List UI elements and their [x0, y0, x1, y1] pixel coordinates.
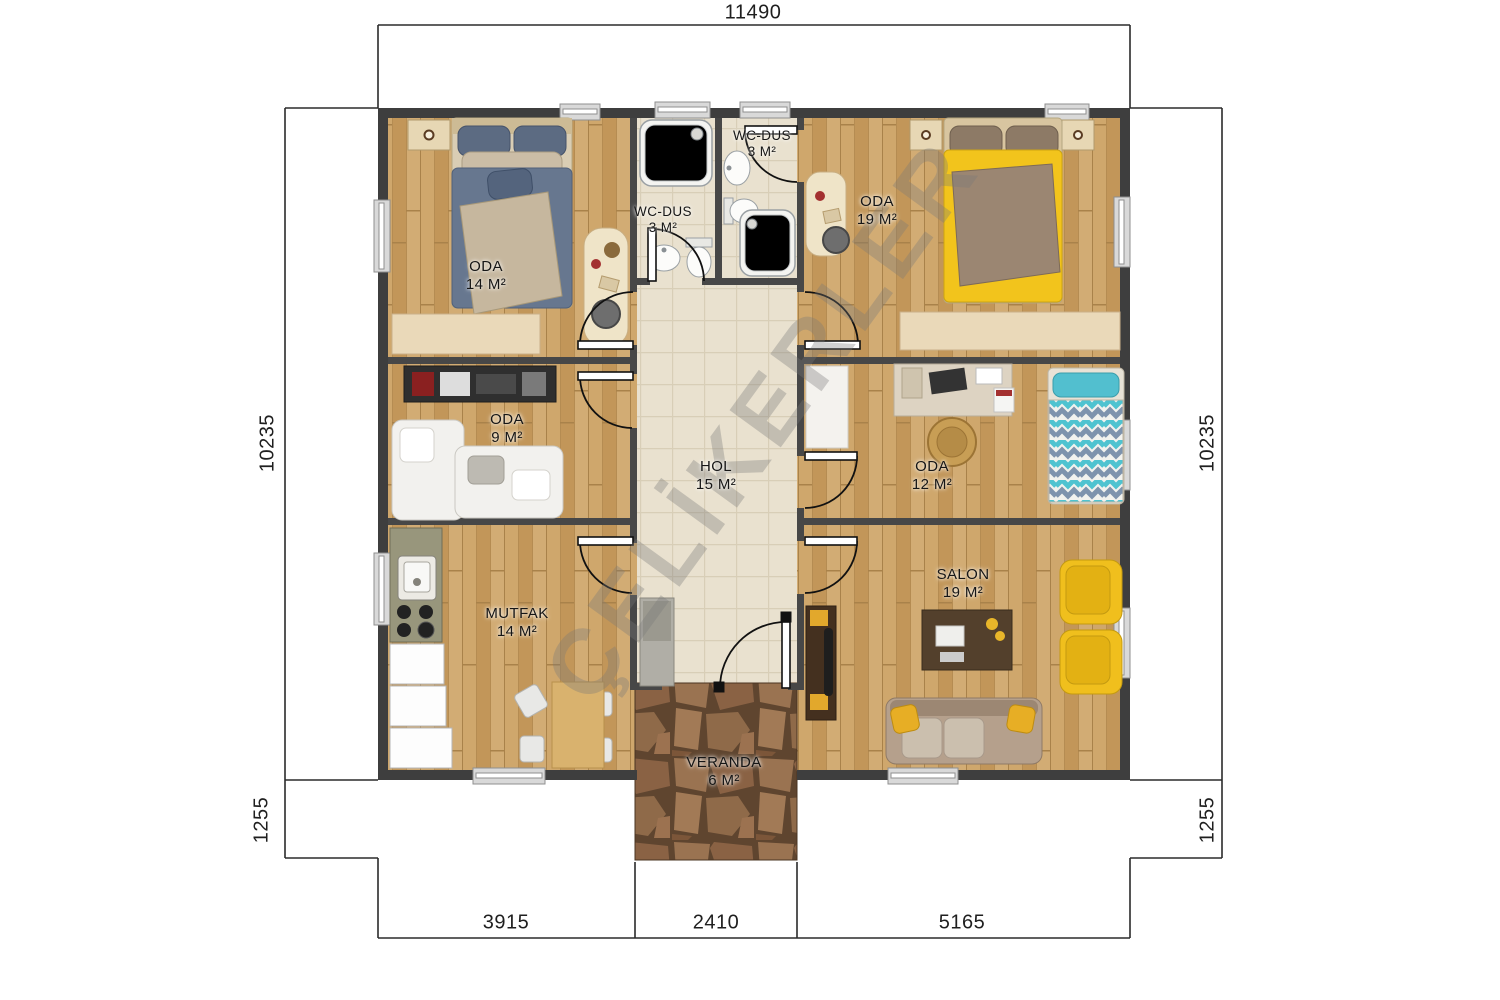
sideboard [392, 314, 540, 354]
kitchen-counter [390, 528, 442, 642]
window-right-oda19 [1114, 197, 1130, 267]
hall-shoe-cabinet [640, 598, 674, 686]
room-area: 6 M² [686, 772, 761, 790]
room-area: 3 M² [733, 144, 791, 160]
room-label-mutfak: MUTFAK 14 M² [485, 605, 548, 641]
room-area: 14 M² [485, 623, 548, 641]
room-name: SALON [937, 566, 990, 584]
shower [640, 120, 712, 186]
room-label-oda19: ODA 19 M² [857, 193, 897, 229]
room-area: 19 M² [937, 584, 990, 602]
dim-bottom-left: 3915 [483, 912, 530, 935]
double-bed-yellow [944, 118, 1062, 303]
room-label-veranda: VERANDA 6 M² [686, 754, 761, 790]
room-area: 12 M² [912, 476, 952, 494]
room-area: 15 M² [696, 476, 736, 494]
coffee-table [922, 610, 1012, 670]
room-area: 3 M² [634, 220, 692, 236]
dresser-desk [584, 228, 628, 346]
dim-right-lower: 1255 [1197, 797, 1220, 844]
room-label-salon: SALON 19 M² [937, 566, 990, 602]
room-name: WC-DUS [733, 128, 791, 144]
room-area: 9 M² [490, 429, 524, 447]
wardrobe-shelf [404, 366, 556, 402]
dim-right-main: 10235 [1197, 414, 1220, 472]
tv-unit [806, 606, 836, 720]
room-name: ODA [490, 411, 524, 429]
room-name: ODA [912, 458, 952, 476]
dim-left-main: 10235 [257, 414, 280, 472]
nightstand [1062, 120, 1094, 150]
window-left-oda14 [374, 200, 390, 272]
floor-plan-page: ÇELİKERLER 11490 10235 1255 10235 1255 3… [0, 0, 1500, 1000]
room-label-hol: HOL 15 M² [696, 458, 736, 494]
room-label-wc2: WC-DUS 3 M² [733, 128, 791, 160]
nightstand [910, 120, 942, 150]
sofa-taupe [886, 698, 1042, 764]
sideboard [900, 312, 1120, 350]
room-name: MUTFAK [485, 605, 548, 623]
dim-bottom-right: 5165 [939, 912, 986, 935]
armchair-yellow [1060, 630, 1122, 694]
dim-left-lower: 1255 [251, 797, 274, 844]
room-area: 14 M² [466, 276, 506, 294]
window-top-bath1 [655, 102, 710, 118]
room-label-oda9: ODA 9 M² [490, 411, 524, 447]
dim-bottom-center: 2410 [693, 912, 740, 935]
room-name: ODA [466, 258, 506, 276]
window-top-bath2 [740, 102, 790, 118]
room-name: VERANDA [686, 754, 761, 772]
window-bottom-mutfak [473, 768, 545, 784]
computer-desk [894, 364, 1014, 416]
room-label-wc1: WC-DUS 3 M² [634, 204, 692, 236]
window-left-mutfak [374, 553, 390, 625]
shower [740, 210, 795, 276]
armchair-yellow [1060, 560, 1122, 624]
nightstand [408, 120, 450, 150]
vanity-desk [806, 172, 849, 256]
kitchen-cabinets [390, 644, 452, 768]
single-bed-chevron [1048, 368, 1124, 504]
dim-top: 11490 [725, 2, 782, 25]
window-bottom-salon [888, 768, 958, 784]
room-label-oda14: ODA 14 M² [466, 258, 506, 294]
room-name: HOL [696, 458, 736, 476]
room-name: ODA [857, 193, 897, 211]
room-label-oda12: ODA 12 M² [912, 458, 952, 494]
room-name: WC-DUS [634, 204, 692, 220]
white-wardrobe [806, 366, 848, 448]
room-area: 19 M² [857, 211, 897, 229]
